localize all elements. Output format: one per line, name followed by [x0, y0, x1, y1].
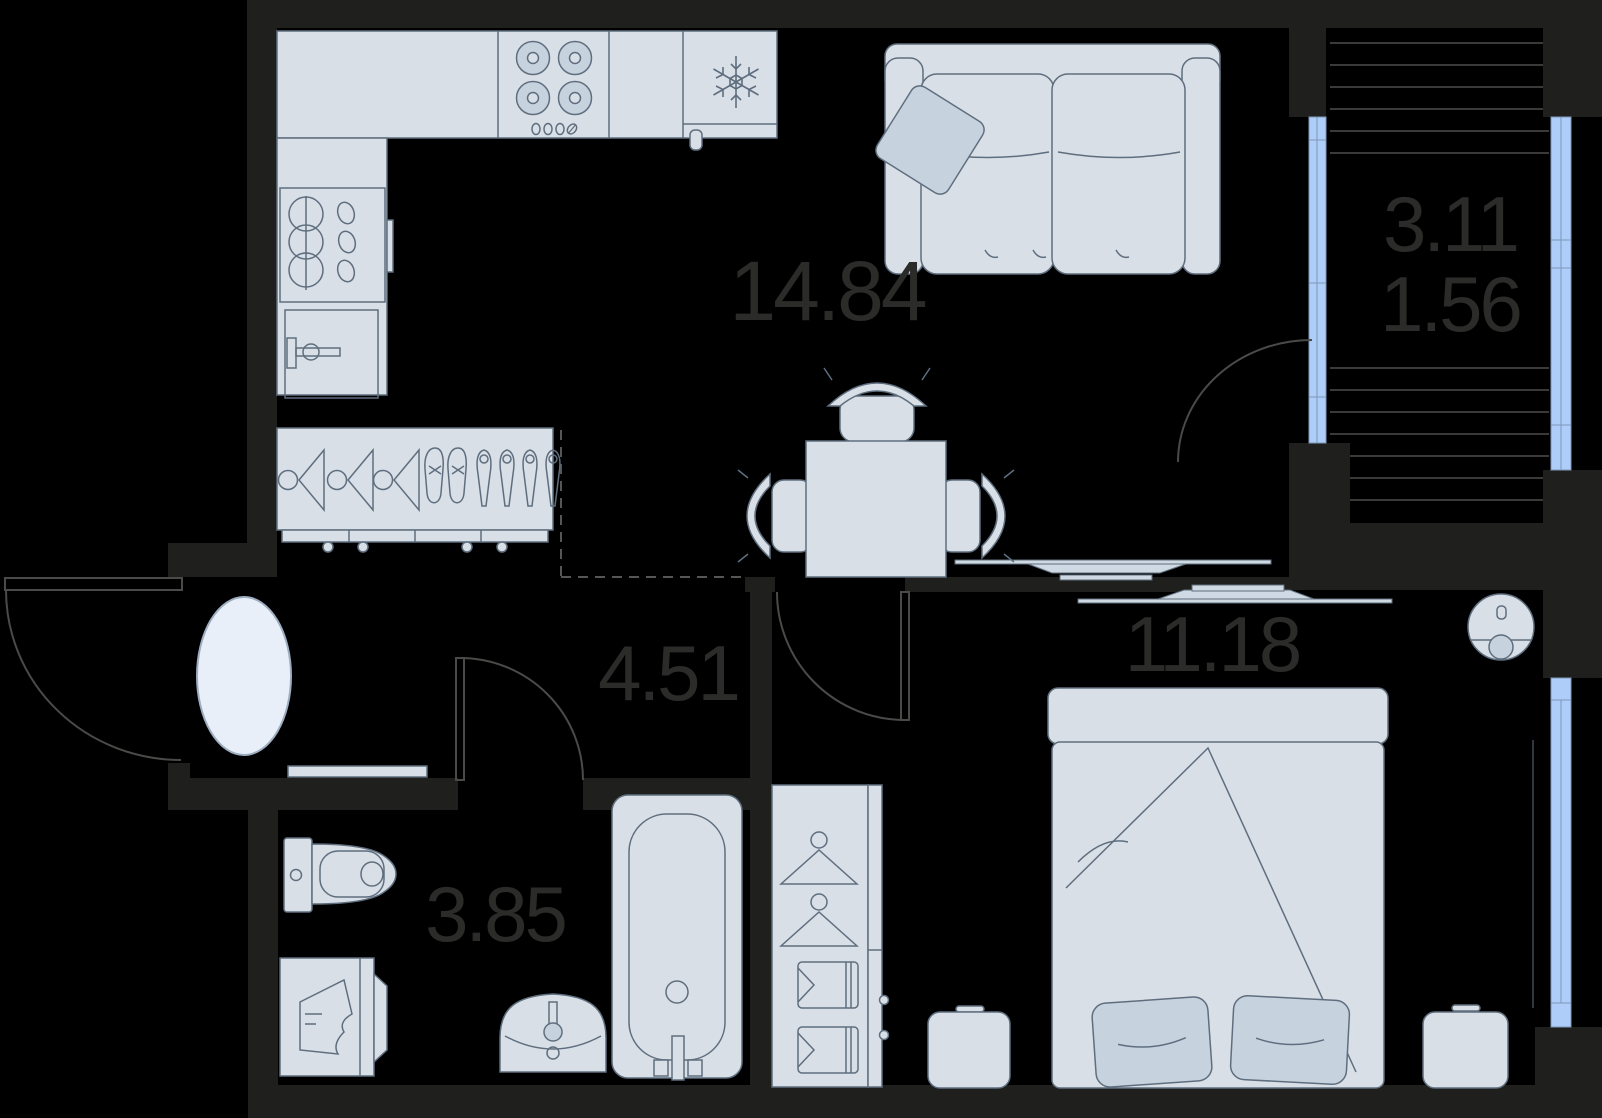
wall-segment — [1289, 28, 1326, 117]
wall-segment — [750, 592, 772, 1085]
wall-segment — [1535, 1027, 1602, 1118]
washing-machine-icon — [280, 958, 387, 1076]
nightstand-left — [928, 1006, 1010, 1088]
room-label-living: 14.84 — [729, 244, 925, 338]
room-label-bathroom: 3.85 — [425, 870, 565, 958]
nightstand-right — [1423, 1005, 1508, 1088]
wall-segment — [168, 543, 277, 577]
bed-pillow — [1091, 996, 1213, 1088]
robot-vacuum-icon — [1468, 594, 1534, 660]
room-label-hallway: 4.51 — [598, 629, 738, 717]
room-label-balcony: 3.11 — [1383, 180, 1517, 268]
wall-segment — [745, 577, 775, 592]
room-label-balcony-reduced: 1.56 — [1380, 260, 1520, 348]
rug-icon — [197, 597, 291, 755]
bed-icon — [1048, 688, 1388, 1088]
room-label-bedroom: 11.18 — [1125, 600, 1299, 688]
wall-segment — [168, 778, 458, 810]
sofa-icon — [872, 44, 1220, 274]
dining-chair — [840, 396, 914, 442]
hall-closet — [277, 428, 560, 552]
wall-segment — [1289, 443, 1350, 590]
wall-segment — [1543, 28, 1602, 117]
wall-segment — [1350, 523, 1543, 590]
fridge-handle — [690, 130, 702, 150]
sink-icon — [500, 994, 606, 1072]
cabinet-handle — [387, 220, 393, 272]
wall-segment — [247, 0, 1602, 28]
wall-segment — [248, 1085, 1602, 1118]
bed-pillow — [1230, 995, 1350, 1085]
headboard — [1048, 688, 1388, 744]
wall-segment — [1543, 470, 1602, 678]
floorplan-svg: 14.84 4.51 3.85 11.18 3.11 1.56 — [0, 0, 1602, 1118]
floorplan-canvas: 14.84 4.51 3.85 11.18 3.11 1.56 — [0, 0, 1602, 1118]
bathtub-icon — [612, 795, 742, 1080]
dining-table-top — [806, 441, 946, 577]
doormat — [288, 766, 427, 777]
balcony-glazing-right — [1551, 117, 1571, 470]
wall-segment — [247, 28, 277, 543]
balcony-glazing-left — [1309, 117, 1326, 443]
wall-segment — [248, 810, 278, 1085]
wardrobe-icon — [772, 785, 889, 1087]
